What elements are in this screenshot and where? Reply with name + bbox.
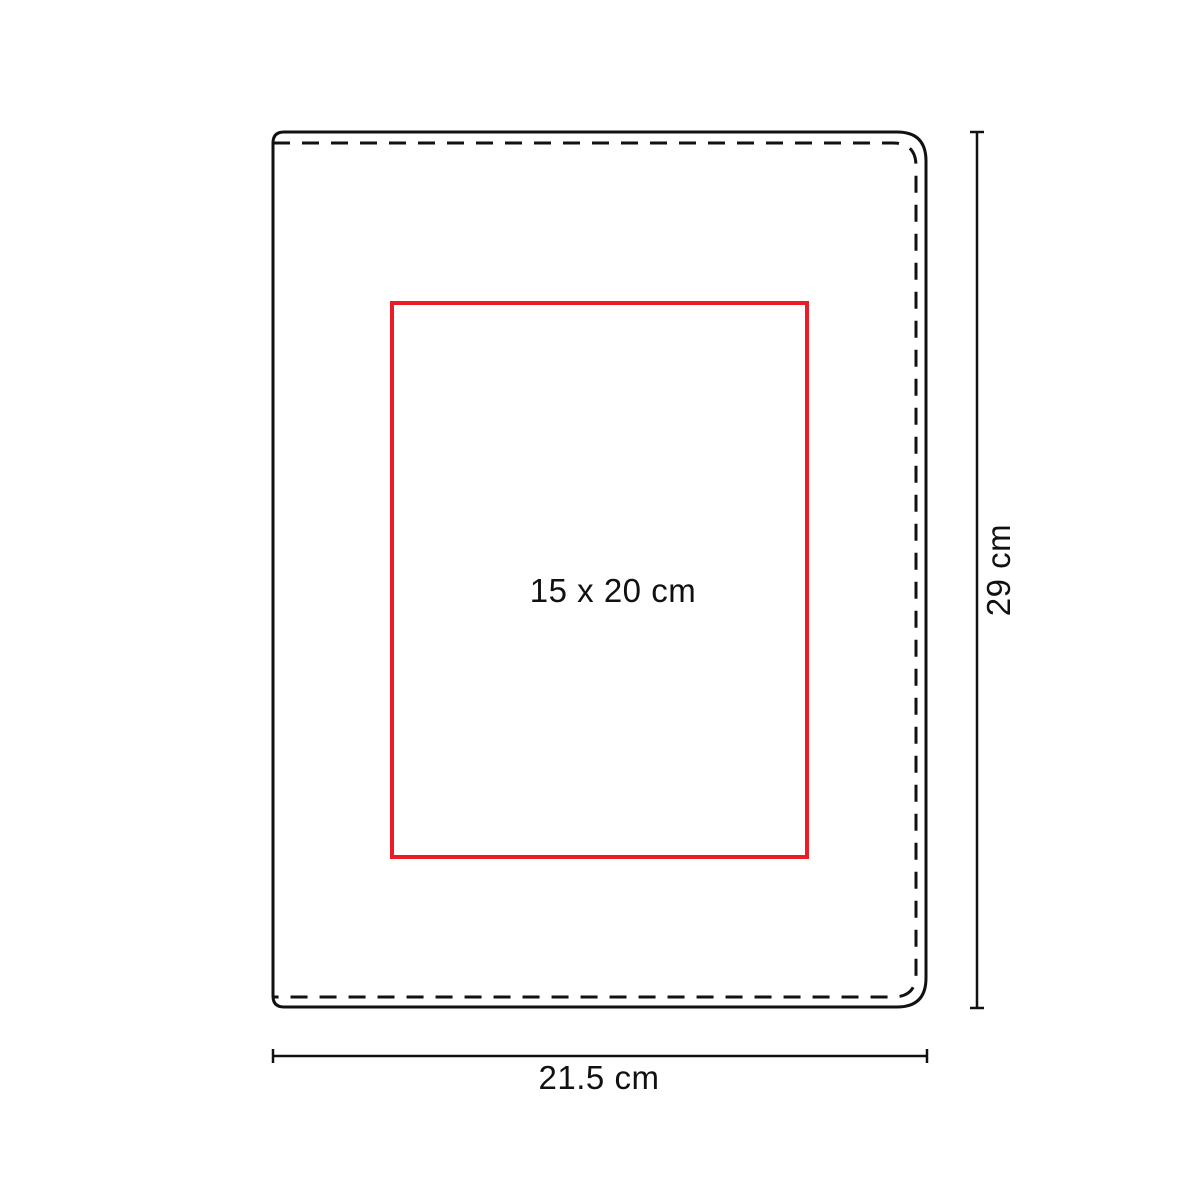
product-dimension-diagram: 15 x 20 cm 29 cm 21.5 cm bbox=[0, 0, 1200, 1200]
product-cover-outline bbox=[273, 132, 926, 1007]
diagram-canvas: 15 x 20 cm 29 cm 21.5 cm bbox=[0, 0, 1200, 1200]
height-dimension-label: 29 cm bbox=[980, 524, 1017, 616]
width-dimension: 21.5 cm bbox=[273, 1049, 927, 1096]
height-dimension: 29 cm bbox=[970, 132, 1017, 1008]
width-dimension-label: 21.5 cm bbox=[539, 1059, 660, 1096]
print-area-label: 15 x 20 cm bbox=[530, 572, 696, 609]
